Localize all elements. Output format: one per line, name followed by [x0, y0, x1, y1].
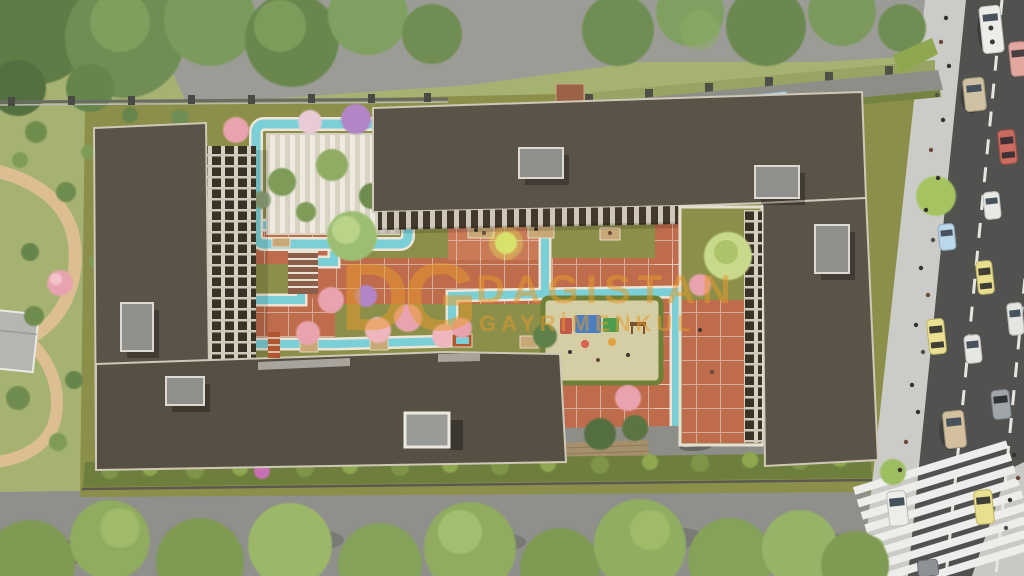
scene-canvas: DG DAGISTAN GAYRİMENKUL: [0, 0, 1024, 576]
watermark-title: DAGISTAN: [476, 268, 738, 312]
sidewalk-tree: [916, 176, 956, 216]
watermark-monogram: DG: [340, 244, 472, 351]
stairs: [288, 248, 318, 294]
watermark-subtitle: GAYRİMENKUL: [479, 311, 696, 336]
aerial-render: DG DAGISTAN GAYRİMENKUL: [0, 0, 1024, 576]
bottom-bar-roof: [96, 352, 566, 470]
left-block-facade: [204, 146, 256, 368]
